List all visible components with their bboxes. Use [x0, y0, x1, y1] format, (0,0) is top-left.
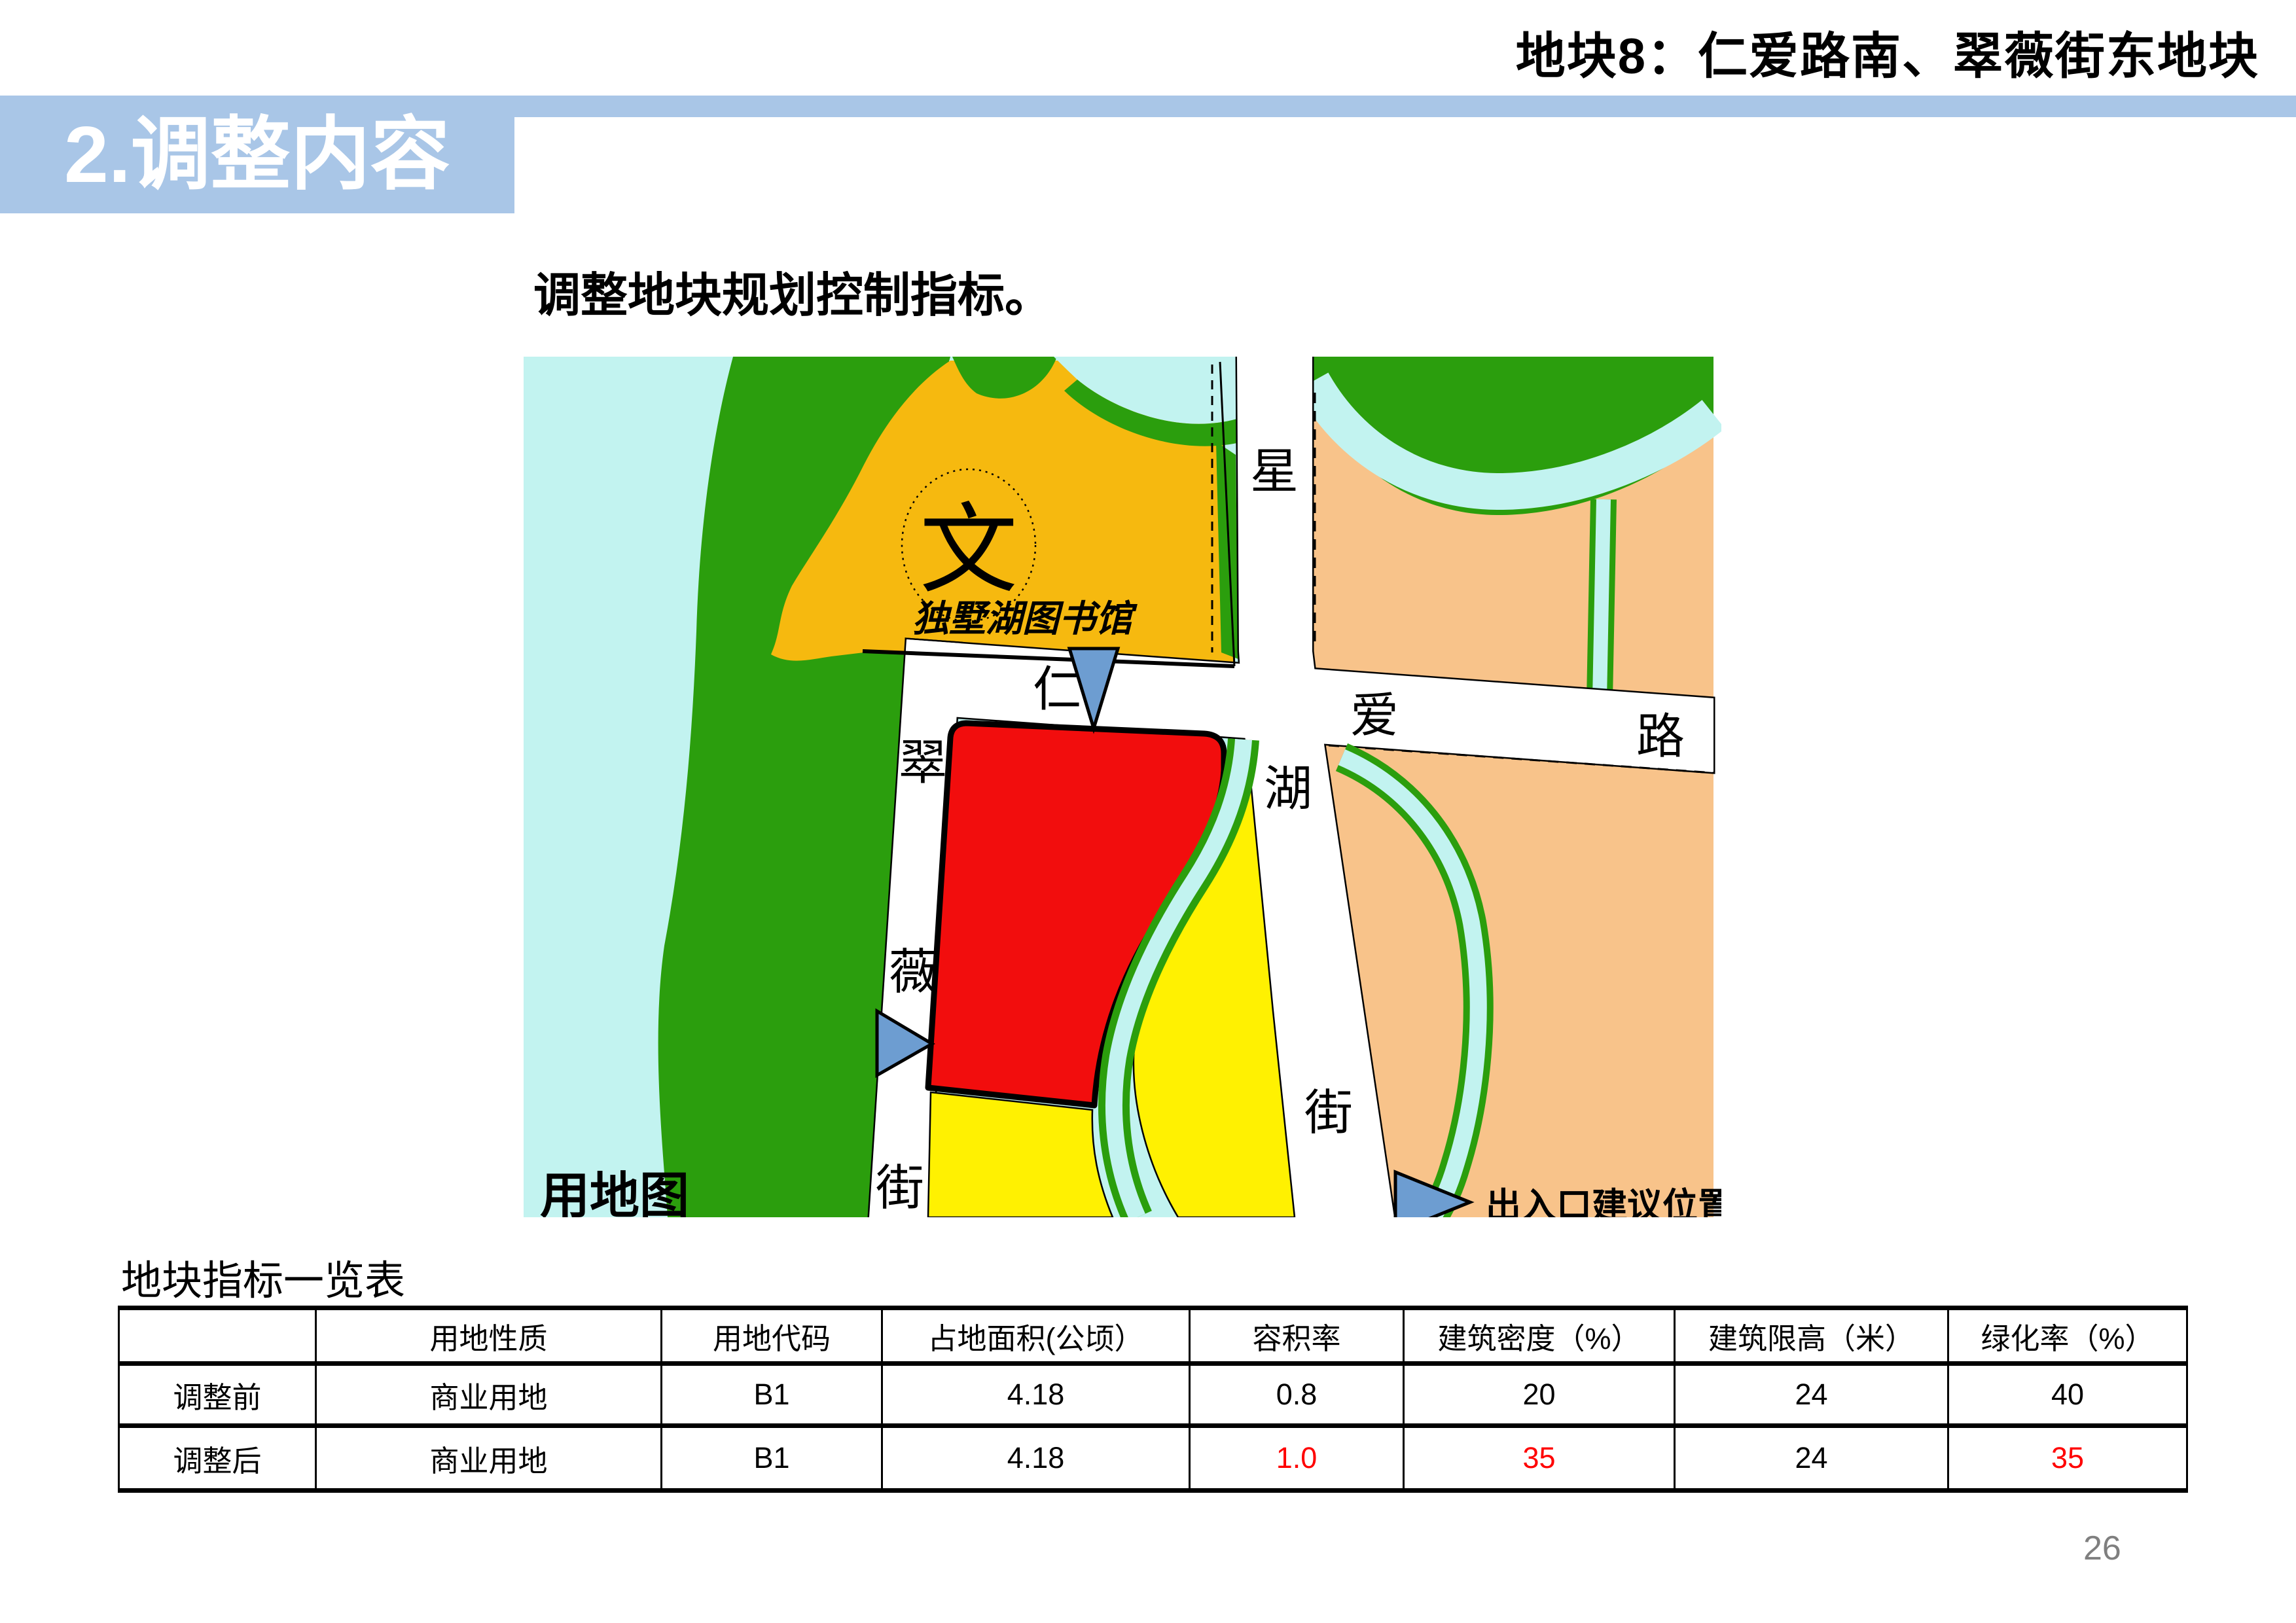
header-cell-area: 占地面积(公顷）	[882, 1308, 1190, 1364]
cell-code: B1	[662, 1364, 882, 1426]
cell-landuse: 商业用地	[316, 1426, 662, 1491]
map-caption: 用地图	[540, 1169, 689, 1218]
slide-subtitle: 调整地块规划控制指标。	[533, 257, 1052, 325]
header-cell-density: 建筑密度（%）	[1404, 1308, 1675, 1364]
header-cell-landuse: 用地性质	[316, 1308, 662, 1364]
landmark-label: 独墅湖图书馆	[912, 598, 1138, 639]
cell-density: 35	[1404, 1426, 1675, 1491]
cell-code: B1	[662, 1426, 882, 1491]
map-right-margin	[1713, 357, 1721, 1217]
road-label-hu: 湖	[1264, 762, 1312, 816]
header-cell-height: 建筑限高（米）	[1675, 1308, 1948, 1364]
cell-greening: 35	[1948, 1426, 2187, 1491]
cell-density: 20	[1404, 1364, 1675, 1426]
road-label-ren: 仁	[1033, 662, 1081, 717]
cell-area: 4.18	[882, 1364, 1190, 1426]
landmark-symbol: 文	[920, 495, 1018, 605]
page-title: 地块8：仁爱路南、翠薇街东地块	[1516, 16, 2259, 88]
plot-yellow-west	[928, 1092, 1113, 1217]
cell-greening: 40	[1948, 1364, 2187, 1426]
row-label: 调整前	[119, 1364, 316, 1426]
table-row-before: 调整前 商业用地 B1 4.18 0.8 20 24 40	[119, 1364, 2187, 1426]
cell-area: 4.18	[882, 1426, 1190, 1491]
road-label-cui: 翠	[899, 736, 947, 790]
road-label-jie1: 街	[1304, 1086, 1353, 1140]
canal-north-water	[1600, 499, 1604, 700]
section-banner-label: 2.调整内容	[64, 101, 450, 208]
table-title: 地块指标一览表	[121, 1247, 405, 1306]
cell-far: 1.0	[1190, 1426, 1404, 1491]
slide: 地块8：仁爱路南、翠薇街东地块 2.调整内容 调整地块规划控制指标。	[0, 0, 2296, 1623]
road-label-jie2: 街	[876, 1161, 924, 1215]
plot-indicator-table: 用地性质 用地代码 占地面积(公顷） 容积率 建筑密度（%） 建筑限高（米） 绿…	[118, 1306, 2188, 1493]
cell-height: 24	[1675, 1364, 1948, 1426]
road-label-wei: 薇	[889, 945, 937, 999]
header-cell-greening: 绿化率（%）	[1948, 1308, 2187, 1364]
road-label-lu: 路	[1636, 709, 1685, 764]
section-banner: 2.调整内容	[0, 96, 514, 213]
header-cell-far: 容积率	[1190, 1308, 1404, 1364]
page-number: 26	[2083, 1529, 2121, 1568]
cell-landuse: 商业用地	[316, 1364, 662, 1426]
entrance-note: 出入口建议位置	[1486, 1186, 1721, 1217]
header-cell-blank	[119, 1308, 316, 1364]
road-label-xing: 星	[1250, 444, 1299, 499]
cell-height: 24	[1675, 1426, 1948, 1491]
table-row-after: 调整后 商业用地 B1 4.18 1.0 35 24 35	[119, 1426, 2187, 1491]
road-label-ai: 爱	[1350, 688, 1399, 743]
header-cell-code: 用地代码	[662, 1308, 882, 1364]
cell-far: 0.8	[1190, 1364, 1404, 1426]
land-use-map: 文 独墅湖图书馆 仁 爱 路 星 湖 街 翠 薇 街 用地图 出入口建议位置	[524, 357, 1721, 1217]
row-label: 调整后	[119, 1426, 316, 1491]
table-header-row: 用地性质 用地代码 占地面积(公顷） 容积率 建筑密度（%） 建筑限高（米） 绿…	[119, 1308, 2187, 1364]
